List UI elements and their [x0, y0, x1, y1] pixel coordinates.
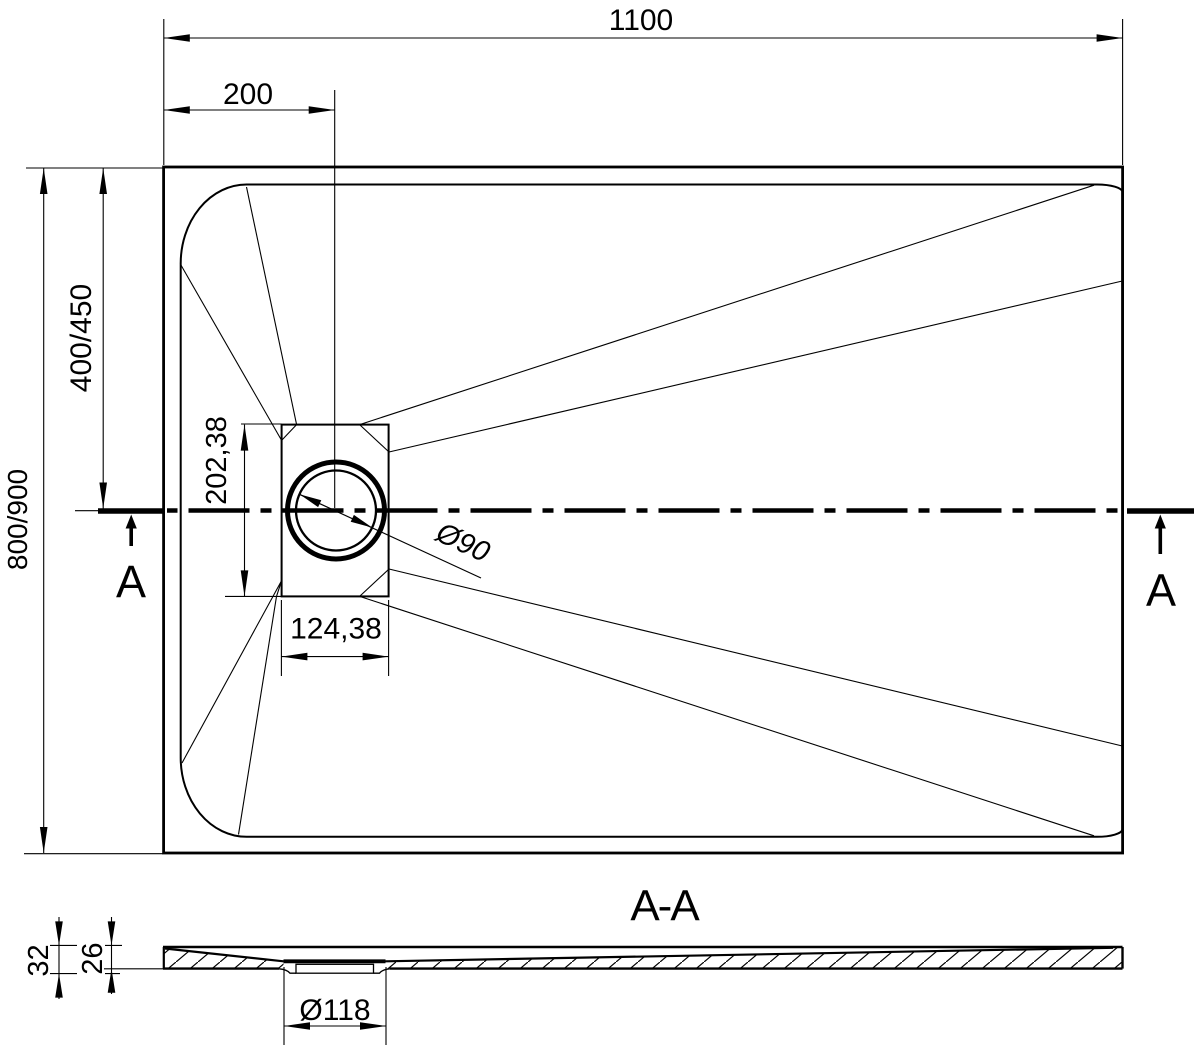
svg-text:800/900: 800/900 [2, 469, 33, 570]
svg-text:A-A: A-A [630, 882, 700, 931]
svg-text:1100: 1100 [609, 4, 674, 37]
svg-text:32: 32 [23, 944, 55, 976]
svg-text:202,38: 202,38 [201, 416, 233, 505]
svg-text:124,38: 124,38 [290, 613, 382, 646]
svg-text:A: A [1146, 565, 1176, 616]
svg-text:400/450: 400/450 [65, 284, 98, 392]
svg-text:Ø118: Ø118 [299, 994, 370, 1027]
svg-text:A: A [116, 556, 146, 607]
svg-text:200: 200 [223, 78, 273, 111]
svg-text:26: 26 [77, 942, 109, 974]
